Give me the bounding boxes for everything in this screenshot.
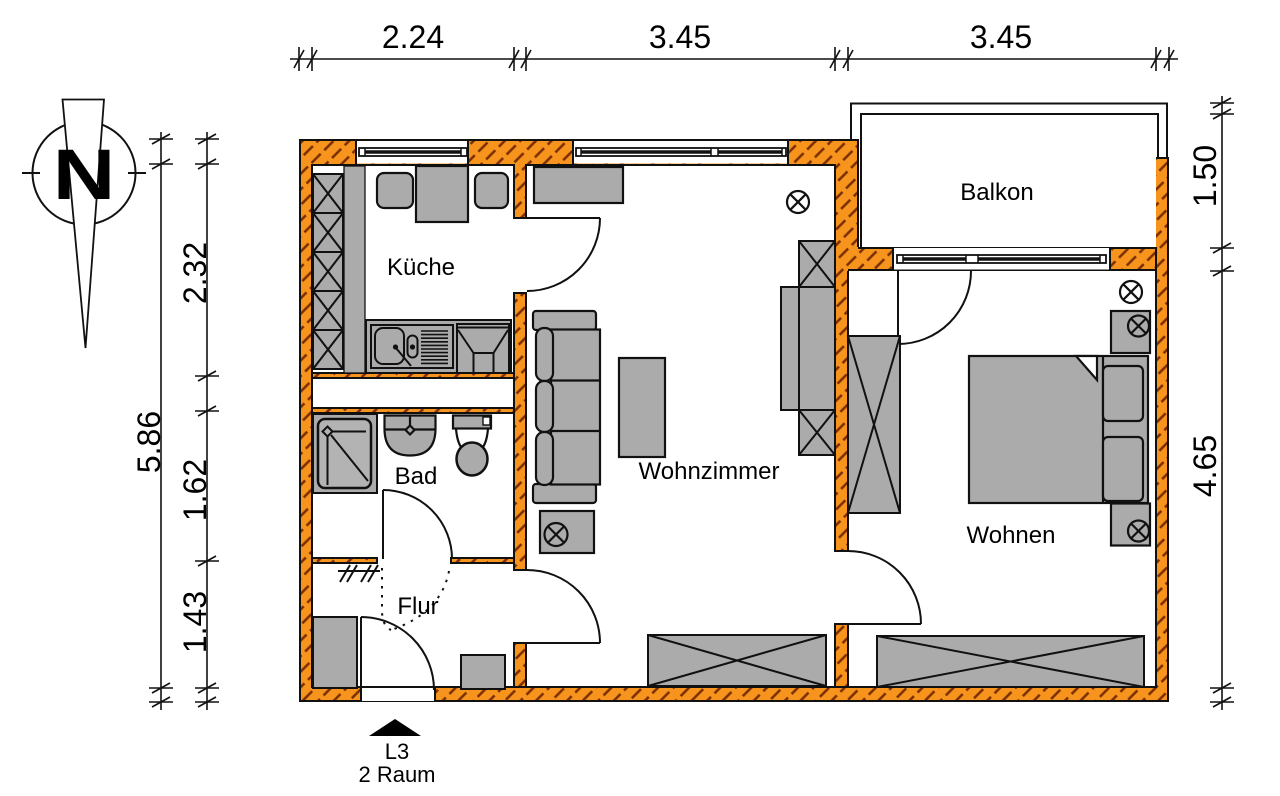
- svg-text:Flur: Flur: [397, 593, 438, 620]
- svg-text:3.45: 3.45: [649, 19, 711, 55]
- svg-text:Balkon: Balkon: [960, 179, 1033, 206]
- svg-text:3.45: 3.45: [970, 19, 1032, 55]
- svg-text:Bad: Bad: [395, 463, 438, 490]
- svg-text:2.32: 2.32: [177, 242, 213, 304]
- svg-text:1.43: 1.43: [177, 591, 213, 653]
- svg-text:Wohnen: Wohnen: [967, 522, 1056, 549]
- svg-text:1.50: 1.50: [1187, 145, 1223, 207]
- svg-text:2 Raum: 2 Raum: [358, 762, 435, 787]
- svg-text:L3: L3: [385, 739, 409, 764]
- svg-text:Küche: Küche: [387, 254, 455, 281]
- svg-text:1.62: 1.62: [177, 459, 213, 521]
- svg-text:Wohnzimmer: Wohnzimmer: [639, 458, 780, 485]
- svg-text:5.86: 5.86: [131, 411, 167, 473]
- svg-text:2.24: 2.24: [382, 19, 444, 55]
- svg-text:4.65: 4.65: [1187, 435, 1223, 497]
- svg-text:N: N: [53, 134, 116, 214]
